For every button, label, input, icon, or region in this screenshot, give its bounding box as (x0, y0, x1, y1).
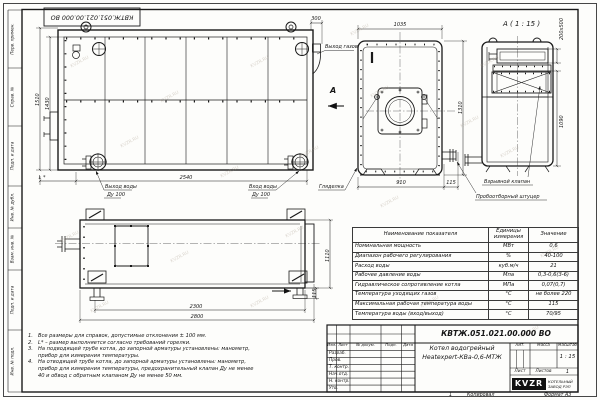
title-block-org-name-line2: ЗАВОД РЭП (548, 384, 571, 389)
spec-cell: Мпа (489, 271, 529, 281)
note-number: 4. (28, 359, 38, 379)
title-row-3: Нач.отд. (329, 372, 348, 377)
front-view-dim-1035: 1035 (394, 22, 407, 28)
title-row-5: Утв. (329, 386, 338, 391)
side-view-dim-1430: 1430 (45, 97, 51, 110)
spec-cell: 70/95 (529, 310, 579, 320)
spec-row: Гидравлическое сопротивление котлаМПа0,0… (353, 281, 579, 291)
frame-bottom-format: Формат А3 (544, 393, 571, 398)
spec-table: Наименование показателя Единицы измерени… (352, 227, 579, 320)
title-row-1: Пров. (329, 358, 342, 363)
spec-cell: Температура воды (вход/выход) (353, 310, 489, 320)
drawing-sheet: КВТЖ.051.021.00.000 ВО Наименование пока… (0, 0, 600, 400)
title-block-sheets-value: 1 (566, 369, 569, 375)
side-view-section-letter: А (330, 86, 336, 95)
spec-cell: 115 (529, 300, 579, 310)
spec-header-row: Наименование показателя Единицы измерени… (353, 228, 579, 243)
title-block-scale-label: Масштаб (558, 342, 577, 347)
technical-notes: 1.Все размеры для справок, допустимые от… (28, 333, 254, 379)
spec-cell: Максимальная рабочая температура воды (353, 300, 489, 310)
note-number: 3. (28, 346, 38, 359)
spec-row: Расход водыкуб.м/ч21 (353, 262, 579, 272)
top-view-dim-2300: 2300 (190, 304, 203, 310)
spec-header-name: Наименование показателя (353, 228, 489, 243)
note-number: 2. (28, 340, 38, 347)
note-text: Все размеры для справок, допустимые откл… (38, 333, 254, 340)
title-block-org-name-line1: КОТЕЛЬНЫЙ (548, 379, 573, 384)
left-stamp-1: Справ. № (10, 87, 15, 107)
spec-cell: Диапазон рабочего регулирования (353, 252, 489, 262)
note-text: L* – размер выполняется согласно требова… (38, 340, 254, 347)
detail-view-callout-explosion-valve: Взрывной клапан (484, 179, 530, 185)
title-block-mass-label: Масса (537, 342, 550, 347)
title-block-doc-number: КВТЖ.051.021.00.000 ВО (441, 329, 551, 338)
title-block-sheet-label: Лист (515, 369, 526, 374)
title-block-product-name-line1: Котел водогрейный (430, 345, 495, 352)
spec-cell: МВт (489, 243, 529, 253)
title-row-2: Т. контр. (329, 365, 349, 370)
left-stamp-4: Взам. инв. № (10, 235, 15, 263)
top-view-dim-115: 115 (312, 288, 318, 298)
title-block-col-headers-2: № докум. (356, 342, 375, 347)
spec-row: Максимальная рабочая температура воды°С1… (353, 300, 579, 310)
spec-cell: Номинальная мощность (353, 243, 489, 253)
note-item: 1.Все размеры для справок, допустимые от… (28, 333, 254, 340)
spec-row: Температура уходящих газов°Сне более 220 (353, 290, 579, 300)
side-view-dim-1510: 1510 (35, 93, 41, 106)
title-row-4: Н. контр. (329, 379, 350, 384)
manufacturer-logo: KVZR (512, 378, 546, 391)
spec-cell: Гидравлическое сопротивление котла (353, 281, 489, 291)
top-view-dim-2800: 2800 (191, 314, 204, 320)
spec-cell: °С (489, 310, 529, 320)
front-view-dim-910: 910 (396, 180, 406, 186)
side-view-dim-300: 300 (311, 16, 321, 22)
spec-cell: °С (489, 300, 529, 310)
spec-cell: не более 220 (529, 290, 579, 300)
spec-header-value: Значение (529, 228, 579, 243)
top-reference-stamp: КВТЖ.051.021.00.000 ВО (51, 14, 134, 21)
spec-cell: Расход воды (353, 262, 489, 272)
spec-row: Диапазон рабочего регулирования%40-100 (353, 252, 579, 262)
side-view-callout-water-in-2: Ду 100 (252, 192, 270, 198)
spec-cell: МПа (489, 281, 529, 291)
top-view-dim-1110: 1110 (325, 249, 331, 262)
spec-cell: 0,3-0,6(3-6) (529, 271, 579, 281)
side-view-dim-2540: 2540 (180, 175, 193, 181)
front-view-dim-1310: 1310 (458, 101, 464, 114)
left-stamp-2: Подп. и дата (10, 142, 15, 171)
title-block-col-headers-0: Изм. (327, 342, 336, 347)
spec-cell: 40-100 (529, 252, 579, 262)
spec-cell: 0,6 (529, 243, 579, 253)
title-block-sheets-label: Листов (535, 369, 551, 374)
spec-row: Рабочее давление водыМпа0,3-0,6(3-6) (353, 271, 579, 281)
title-block-scale-value: 1 : 15 (560, 354, 576, 360)
detail-view-dim-1090: 1090 (559, 115, 565, 128)
spec-cell: °С (489, 290, 529, 300)
detail-view-title: А ( 1 : 15 ) (503, 20, 540, 28)
note-text: На подводящей трубе котла, до запорной а… (38, 346, 254, 359)
spec-row: Номинальная мощностьМВт0,6 (353, 243, 579, 253)
detail-view-callout-sampling: Пробоотборный штуцер (476, 194, 540, 200)
frame-bottom-copied: Копировал (467, 393, 494, 398)
spec-row: Температура воды (вход/выход)°С70/95 (353, 310, 579, 320)
title-block-lit-label: Лит. (515, 342, 524, 347)
title-block-col-headers-1: Лист (338, 342, 348, 347)
left-stamp-0: Перв. примен. (10, 23, 15, 54)
title-row-0: Разраб. (329, 351, 346, 356)
note-item: 4.На отводящей трубе котла, до запорной … (28, 359, 254, 379)
side-view-callout-water-out-2: Ду 100 (107, 192, 125, 198)
side-view-dim-L: L * (39, 175, 46, 181)
spec-cell: куб.м/ч (489, 262, 529, 272)
note-number: 1. (28, 333, 38, 340)
side-view-callout-water-out-1: Выход воды (105, 184, 137, 190)
detail-view-dim-200x500: 200х500 (559, 18, 565, 40)
note-item: 3.На подводящей трубе котла, до запорной… (28, 346, 254, 359)
frame-bottom-sheet-num: 1 (449, 393, 452, 398)
left-stamp-5: Подп. и дата (10, 286, 15, 315)
spec-cell: Рабочее давление воды (353, 271, 489, 281)
left-stamp-6: Инв. № подл. (10, 347, 15, 376)
front-view-dim-115: 115 (446, 180, 456, 186)
spec-cell: 21 (529, 262, 579, 272)
title-block-col-headers-3: Подп. (385, 342, 397, 347)
side-view-callout-gas-out: Выход газов (325, 44, 358, 50)
spec-header-units: Единицы измерения (489, 228, 529, 243)
title-block-product-name-line2: Heatexpert-КВа-0,6-МТЖ (422, 354, 502, 361)
note-text: На отводящей трубе котла, до запорной ар… (38, 359, 254, 379)
side-view-callout-sight: Гляделка (319, 184, 344, 190)
title-block-col-headers-4: Дата (403, 342, 413, 347)
left-stamp-3: Инв. № дубл. (10, 193, 15, 222)
spec-cell: 0,07(0,7) (529, 281, 579, 291)
spec-cell: Температура уходящих газов (353, 290, 489, 300)
note-item: 2.L* – размер выполняется согласно требо… (28, 340, 254, 347)
side-view-callout-water-in-1: Вход воды (249, 184, 277, 190)
spec-cell: % (489, 252, 529, 262)
